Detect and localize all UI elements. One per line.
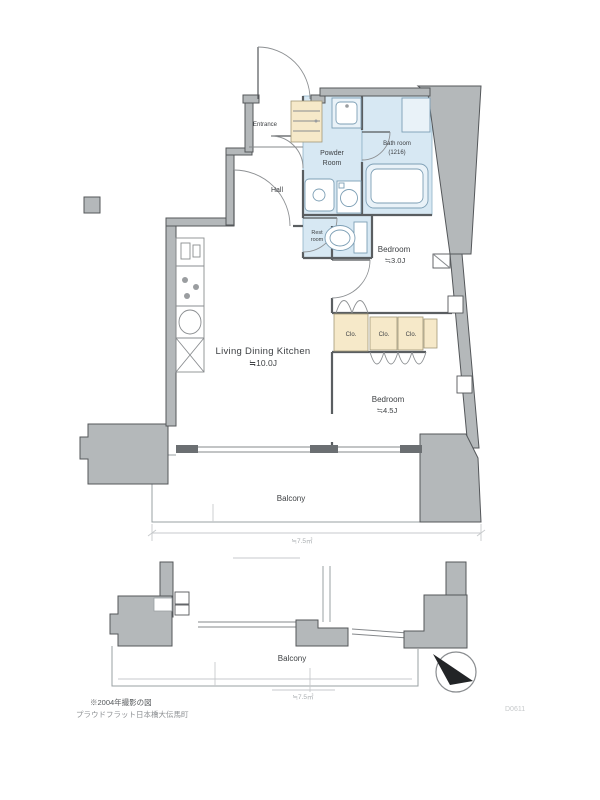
powder-room-label-1: Powder [320,150,344,157]
wall-bottom-left-block [80,424,168,484]
upper-balcony-dim: ≒7.5㎡ [292,536,313,545]
balcony-window-lines [198,447,400,452]
lower-balcony-dim: ≒7.5㎡ [293,692,314,701]
bedroom-small-label: Bedroom [378,245,411,254]
refrigerator-space-icon [176,338,204,372]
bedroom-small-door-arc [332,260,370,298]
rest-room-label-2: room [311,237,324,243]
wall-hall-left [226,148,234,225]
footnote-property-name: プラウドフラット日本橋大伝馬町 [76,709,189,719]
lower-wall-right-strip [446,562,466,595]
bath-room-label-1: Bath room [383,141,411,147]
stove-burner-icon [182,277,188,283]
pipe-space-icon [448,296,463,313]
wall-bath-top [320,88,430,96]
closet-4-box [424,319,437,348]
ldk-door-arc [234,170,290,226]
hall-label: Hall [271,187,284,194]
entrance-label: Entrance [253,122,278,128]
bedroom-large-label: Bedroom [372,395,405,404]
entrance-door-arc [258,47,310,99]
bath-room-label-2: (1216) [388,150,405,156]
wall-bottom-right-block [420,434,481,522]
pipe-space-icon [457,376,472,393]
floor-plan-drawing: Entrance Hall Powder Room Bath room (121… [0,0,600,800]
bedroom-small-size: ≒3.0J [385,256,406,265]
ldk-size: ≒10.0J [249,358,277,368]
upper-balcony-label: Balcony [277,494,305,503]
lower-window-lines-left [198,622,296,627]
rest-room-label-1: Rest [311,230,323,236]
ldk-label: Living Dining Kitchen [215,346,310,357]
wall-right-slanted [450,254,479,448]
wall-ldk-top [166,218,234,226]
lower-wall-center-block [296,620,348,646]
floor-plan-page: Entrance Hall Powder Room Bath room (121… [0,0,600,800]
lower-window-lines-right [352,629,408,638]
stove-burner-icon [193,284,199,290]
kitchen-sink-icon [179,310,201,334]
compass-north-icon [433,652,476,692]
bedroom-large-size: ≒4.5J [377,406,398,415]
closet-3-label: Clo. [406,332,417,338]
wall-left [166,220,176,426]
bifold-doors-bottom-icon [370,352,426,364]
closet-2-label: Clo. [379,332,390,338]
lower-wall-right-block [404,595,467,648]
toilet-tank-icon [354,222,367,253]
bath-counter-icon [402,98,430,132]
footnote-year: ※2004年撮影の図 [90,697,152,707]
wall-entrance-top-left [243,95,259,103]
wall-left-stub [84,197,100,213]
lower-balcony-label: Balcony [278,654,306,663]
powder-room-label-2: Room [323,160,342,167]
lower-balcony-plan: Balcony ≒7.5㎡ [110,558,476,701]
stove-burner-icon [184,293,190,299]
document-id: D0611 [505,706,525,713]
kitchen-counter-icon [176,238,204,372]
closet-1-label: Clo. [346,332,357,338]
wall-entrance-left [245,99,253,152]
bifold-doors-top-icon [336,301,368,314]
